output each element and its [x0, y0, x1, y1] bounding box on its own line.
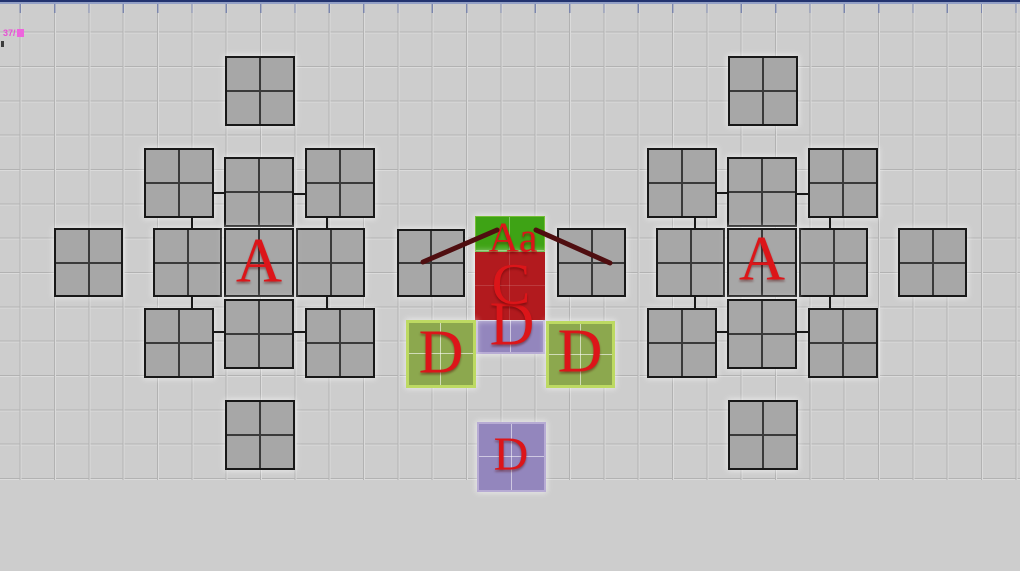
cursor-mark: [1, 41, 4, 47]
measure-lines-layer: [0, 0, 1020, 571]
cad-canvas[interactable]: AAAaDCDDD 37/: [0, 0, 1020, 571]
status-text: 37/: [3, 28, 16, 38]
status-label: 37/: [3, 28, 24, 38]
measure-line[interactable]: [536, 230, 610, 263]
status-block-glyph: [17, 29, 24, 37]
measure-line[interactable]: [423, 230, 497, 262]
window-top-edge-light: [0, 2, 1020, 4]
